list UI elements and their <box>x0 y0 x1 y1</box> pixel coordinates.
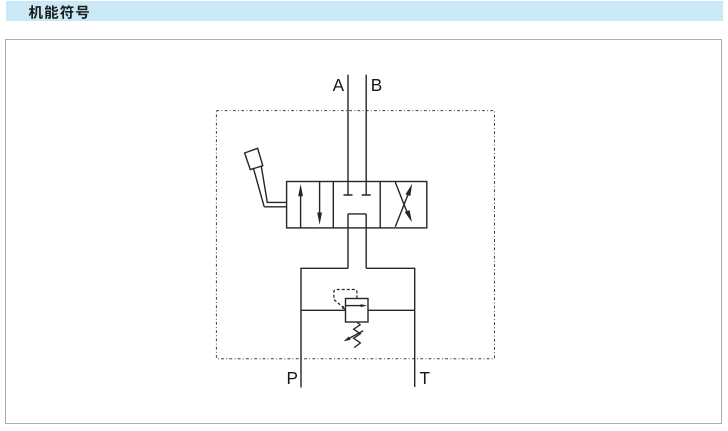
svg-text:A: A <box>333 75 345 95</box>
svg-text:T: T <box>420 368 431 388</box>
svg-text:P: P <box>286 368 297 388</box>
svg-text:B: B <box>371 75 382 95</box>
